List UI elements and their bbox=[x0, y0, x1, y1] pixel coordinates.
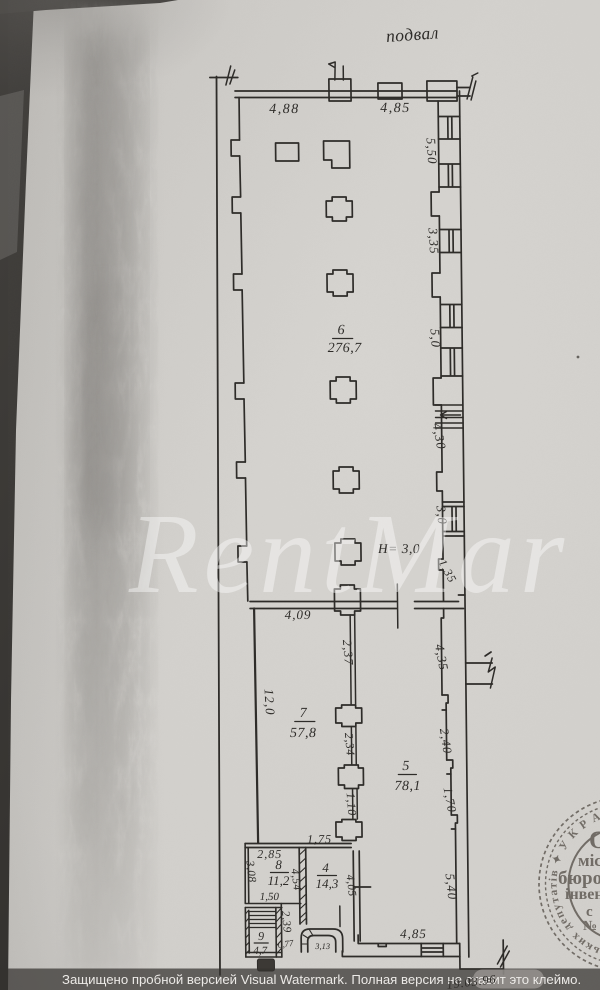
svg-text:5,0: 5,0 bbox=[428, 328, 444, 348]
svg-text:3,35: 3,35 bbox=[425, 226, 442, 255]
svg-text:2,34: 2,34 bbox=[342, 732, 358, 756]
svg-text:11,2: 11,2 bbox=[267, 873, 289, 888]
svg-text:RentMar: RentMar bbox=[128, 490, 569, 617]
svg-text:8: 8 bbox=[275, 857, 282, 872]
svg-text:Об: Об bbox=[589, 827, 600, 854]
svg-text:1,75: 1,75 bbox=[307, 832, 332, 846]
svg-text:с: с bbox=[586, 904, 593, 920]
svg-text:78,1: 78,1 bbox=[394, 779, 421, 794]
svg-text:4,54: 4,54 bbox=[288, 868, 302, 891]
svg-text:1,10: 1,10 bbox=[344, 792, 360, 816]
svg-text:4,88: 4,88 bbox=[269, 102, 300, 117]
svg-text:4,05: 4,05 bbox=[343, 874, 357, 897]
svg-text:276,7: 276,7 bbox=[328, 341, 363, 356]
svg-text:9: 9 bbox=[258, 929, 264, 943]
svg-text:1,50: 1,50 bbox=[260, 891, 280, 903]
svg-text:4,85: 4,85 bbox=[400, 926, 427, 941]
svg-text:4,85: 4,85 bbox=[380, 101, 411, 116]
svg-text:7: 7 bbox=[300, 706, 308, 721]
svg-text:12,0: 12,0 bbox=[261, 688, 278, 716]
svg-text:4,7: 4,7 bbox=[253, 945, 267, 957]
svg-text:№ 1: № 1 bbox=[583, 919, 600, 934]
svg-text:5,40: 5,40 bbox=[442, 873, 460, 901]
svg-text:2,39: 2,39 bbox=[279, 910, 293, 933]
svg-text:5: 5 bbox=[402, 759, 409, 774]
svg-text:5,50: 5,50 bbox=[423, 137, 440, 165]
svg-text:інвен: інвен bbox=[565, 886, 600, 903]
svg-text:57,8: 57,8 bbox=[290, 726, 317, 741]
svg-text:6: 6 bbox=[337, 323, 344, 338]
svg-text:Защищено пробной версией Visua: Защищено пробной версией Visual Watermar… bbox=[62, 972, 581, 987]
svg-text:4: 4 bbox=[322, 860, 329, 875]
svg-text:3,13: 3,13 bbox=[314, 941, 330, 951]
svg-text:подвал: подвал bbox=[385, 22, 439, 46]
svg-text:2,37: 2,37 bbox=[340, 639, 356, 666]
svg-text:14,3: 14,3 bbox=[315, 876, 338, 891]
